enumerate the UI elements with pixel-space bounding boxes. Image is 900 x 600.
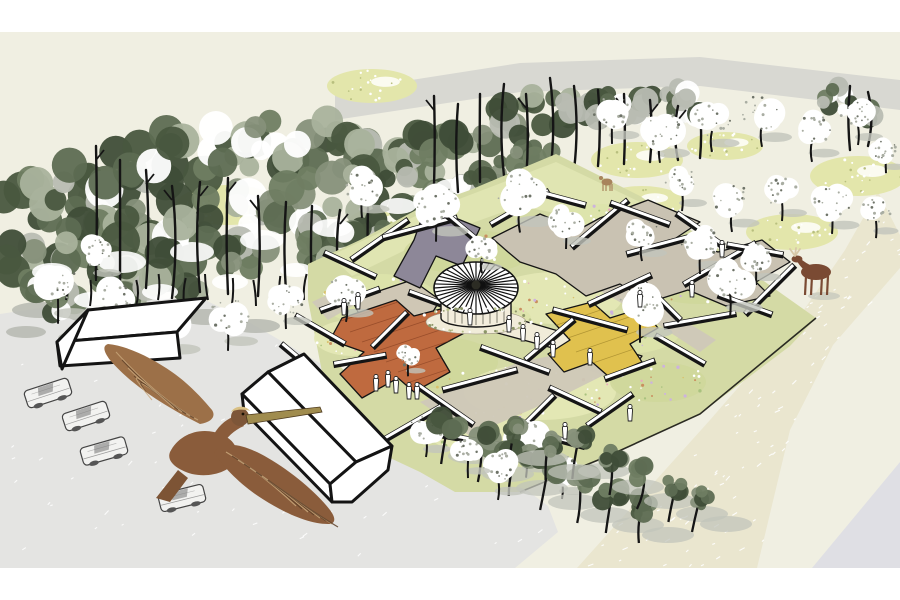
flower-dot [316,341,319,344]
mound-dot [351,88,353,90]
mound-dot [756,147,758,149]
pavilion-bed-dot [428,324,431,327]
canopy-speckle [483,237,486,240]
canopy-speckle [579,221,581,223]
canopy-speckle [405,361,407,363]
canopy-speckle [247,315,249,317]
canopy-speckle [56,289,58,291]
mound-dot [360,89,362,91]
canopy-speckle [228,325,231,328]
canopy-speckle [850,122,853,125]
canopy-speckle [404,355,406,357]
flower-dot [523,310,525,312]
mound-dot [824,228,826,230]
canopy-speckle [661,135,663,137]
canopy-speckle [605,121,607,123]
person-head [690,280,694,284]
canopy-speckle [693,183,695,185]
flower-dot [573,297,574,298]
canopy-speckle [861,111,863,113]
canopy-speckle [646,232,649,235]
mound-dot [360,87,361,88]
canopy-blob [613,492,626,505]
canopy-speckle [652,304,654,306]
person-body [562,426,567,439]
canopy-speckle [553,219,555,221]
canopy-speckle [713,195,715,197]
canopy-speckle [694,113,697,116]
canopy-blob [611,450,628,467]
canopy-speckle [712,109,713,110]
canopy-speckle [408,358,411,361]
person-figure [506,315,511,332]
mound-dot [367,81,370,84]
mound-dot [740,149,743,152]
flower-dot [546,304,548,306]
canopy-speckle [552,225,554,227]
pavilion-bed-dot [524,320,526,322]
tree-shadow [283,317,311,325]
person-figure [393,376,398,393]
flower-dot [698,389,701,392]
site-rendering-canvas [0,0,900,600]
canopy-speckle [631,231,634,234]
canopy-speckle [398,352,400,354]
canopy-speckle [707,134,709,136]
canopy-speckle [752,96,755,99]
person-head [374,374,378,378]
mound-dot [849,169,852,172]
mound-dot [863,175,866,178]
canopy-speckle [91,245,93,247]
canopy-speckle [613,125,616,128]
canopy-speckle [347,289,349,291]
canopy-speckle [794,185,797,188]
canopy-speckle [504,478,506,480]
canopy-speckle [781,182,784,185]
canopy-speckle [894,150,897,153]
mound-shape [327,69,417,103]
canopy-speckle [710,236,712,238]
mound-dot [851,162,853,164]
canopy-speckle [638,287,640,289]
canopy-speckle [873,217,875,219]
flower-dot [598,397,600,399]
canopy-speckle [674,169,676,171]
canopy-speckle [349,299,351,301]
canopy-speckle [701,123,703,125]
canopy-speckle [824,138,827,141]
tree-trunk [232,278,233,304]
canopy-blob [817,96,830,109]
canopy-speckle [888,210,890,212]
canopy-speckle [530,177,533,180]
person-head [468,308,472,312]
canopy-speckle [362,285,365,288]
person-figure [355,292,360,309]
canopy-speckle [564,222,566,224]
canopy-speckle [716,112,719,115]
canopy-speckle [298,302,300,304]
moose-shadow [808,292,840,300]
canopy-speckle [867,219,869,221]
mound-dot [628,174,630,176]
canopy-speckle [521,196,523,198]
canopy-speckle [873,201,875,203]
canopy-speckle [752,268,754,270]
canopy-speckle [498,475,500,477]
canopy-speckle [99,241,101,243]
mound-dot [794,224,796,226]
canopy-speckle [766,251,768,253]
canopy-speckle [813,137,815,139]
canopy-blob [665,484,678,497]
canopy-speckle [738,199,740,201]
canopy-speckle [423,437,425,439]
pavilion-bed-dot [484,330,487,333]
canopy-speckle [802,130,804,132]
canopy-speckle [842,196,843,197]
canopy-speckle [650,120,652,122]
canopy-speckle [505,454,508,457]
canopy-blob [55,231,78,254]
canopy-speckle [720,200,722,202]
pavilion-bed-dot [454,307,457,310]
canopy-speckle [642,226,645,229]
mound-dot [370,79,372,81]
mound-dot [811,234,813,236]
person-body [506,319,511,332]
canopy-speckle [125,302,128,305]
pelican-eye [242,413,245,416]
flower-dot [327,341,329,343]
canopy-speckle [534,425,537,428]
flower-dot [640,387,641,388]
canopy-speckle [768,185,770,187]
canopy-speckle [605,126,606,127]
canopy-speckle [822,202,824,204]
mound-dot [657,196,659,198]
canopy-speckle [300,303,303,306]
canopy-speckle [710,229,713,232]
mound-dot [722,134,724,136]
canopy-speckle [691,171,693,173]
mound-dot [801,224,803,226]
mound-dot [642,189,644,191]
canopy-speckle [719,127,722,130]
mound-dot [769,238,772,241]
canopy-speckle [573,221,576,224]
mound-dot [374,99,377,102]
canopy-speckle [884,153,886,155]
canopy-speckle [656,226,658,228]
canopy-speckle [536,184,538,186]
pavilion-bed-dot [518,327,520,329]
mound-dot [627,146,629,148]
canopy-speckle [288,291,290,293]
person-body [520,328,525,341]
canopy-speckle [603,118,606,121]
flower-dot [533,299,536,302]
canopy-speckle [742,114,744,116]
canopy-speckle [462,452,465,455]
canopy-speckle [63,293,65,295]
flower-dot [523,280,526,283]
mound-dot [378,97,381,100]
canopy-speckle [519,174,521,176]
canopy-speckle [481,240,483,242]
canopy-speckle [235,300,236,301]
canopy-blob [244,116,266,138]
canopy-speckle [877,156,880,159]
canopy-speckle [481,259,484,262]
mound-dot [857,174,859,176]
canopy-speckle [119,286,122,289]
canopy-speckle [745,101,748,104]
canopy-blob [284,131,311,158]
canopy-speckle [871,199,873,201]
canopy-speckle [776,109,777,110]
mound-dot [646,146,648,148]
flower-dot [528,282,529,283]
canopy-speckle [102,249,105,252]
flower-dot [694,379,696,381]
mound-dot [379,89,382,92]
mound-dot [350,98,352,100]
canopy-speckle [620,299,622,301]
canopy-blob [221,252,242,273]
canopy-speckle [403,363,406,366]
canopy-speckle [854,117,856,119]
flower-dot [661,386,663,388]
pavilion-bed-dot [496,308,498,310]
canopy-speckle [768,260,770,262]
canopy-speckle [652,296,654,298]
canopy-speckle [272,303,274,305]
person-body [341,302,346,315]
mound-dot [366,70,368,72]
canopy-speckle [677,179,679,181]
canopy-speckle [404,345,407,348]
canopy-speckle [346,184,349,187]
pavilion-bed-dot [457,308,460,311]
canopy-speckle [501,473,503,475]
person-figure [689,280,694,297]
canopy-speckle [447,202,450,205]
pavilion-bed-dot [451,329,453,331]
canopy-speckle [721,289,724,292]
canopy-speckle [510,180,512,182]
mound-dot [869,179,871,181]
canopy-speckle [351,291,354,294]
canopy-speckle [622,115,625,118]
mound-dot [399,78,402,81]
mound-dot [863,167,866,170]
canopy-speckle [554,225,556,227]
flower-dot [595,389,597,391]
canopy-speckle [878,147,881,150]
canopy-speckle [529,195,532,198]
mound-dot [725,150,728,153]
canopy-speckle [871,206,874,209]
canopy-speckle [761,261,764,264]
canopy-speckle [474,255,477,258]
canopy-speckle [840,114,843,117]
person-body [355,296,360,309]
canopy-speckle [770,182,772,184]
pavilion-bed-dot [512,327,515,330]
flower-dot [519,308,522,311]
canopy-speckle [705,248,707,250]
mound-dot [360,77,362,79]
mound-dot [797,226,800,229]
canopy-speckle [246,322,248,324]
canopy-speckle [839,213,842,216]
canopy-speckle [456,454,459,457]
canopy-speckle [459,451,461,453]
mound-dot [332,81,335,84]
pavilion-bed-dot [434,326,437,329]
canopy-speckle [681,183,684,186]
pavilion-bed-dot [469,331,471,333]
canopy-speckle [290,311,291,312]
canopy-speckle [350,173,352,175]
canopy-speckle [867,204,869,206]
pavilion-bed-dot [448,329,450,331]
person-figure [637,290,642,307]
canopy-speckle [417,360,419,362]
canopy-speckle [649,304,650,305]
canopy-speckle [710,242,712,244]
canopy-blob [578,430,592,444]
canopy-speckle [426,220,429,223]
tree-shadow [753,273,781,281]
canopy-blob [850,108,869,127]
canopy-speckle [417,206,419,208]
canopy-speckle [125,287,128,290]
canopy-speckle [884,150,886,152]
canopy-speckle [829,188,831,190]
mound-dot [625,169,627,171]
canopy-speckle [753,260,756,263]
mound-dot [617,168,619,170]
canopy-speckle [402,359,404,361]
canopy-speckle [861,106,863,108]
canopy-speckle [734,292,736,294]
canopy-blob [515,177,546,208]
canopy-speckle [665,182,667,184]
canopy-speckle [475,451,477,453]
flower-dot [651,395,653,397]
pavilion-bed-dot [462,331,464,333]
canopy-speckle [356,174,359,177]
canopy-blob [442,419,463,440]
canopy-speckle [712,248,714,250]
flower-dot [587,388,589,390]
canopy-speckle [220,302,222,304]
canopy-speckle [498,454,501,457]
canopy-speckle [646,304,648,306]
canopy-speckle [371,191,373,193]
person-figure [627,404,632,421]
canopy-speckle [509,468,512,471]
canopy-speckle [490,470,493,473]
canopy-speckle [686,246,689,249]
mound-dot [776,239,778,241]
mound-dot [630,168,631,169]
flower-dot [629,386,631,388]
flower-dot [329,342,332,345]
canopy-speckle [414,356,416,358]
canopy-speckle [803,117,806,120]
canopy-speckle [469,251,471,253]
canopy-blob [696,485,708,497]
pavilion-bed-dot [460,307,463,310]
flower-dot [650,368,653,371]
tree-trunk [876,221,877,238]
flower-dot [697,375,700,378]
canopy-speckle [102,298,104,300]
canopy-speckle [709,247,712,250]
canopy-speckle [729,281,731,283]
tree-shadow [709,139,740,148]
canopy-speckle [602,98,604,100]
canopy-speckle [360,198,362,200]
canopy-speckle [652,142,655,145]
mound-dot [599,164,602,167]
pavilion-bed-dot [464,307,467,310]
canopy-speckle [292,306,294,308]
canopy-speckle [50,300,52,302]
pavilion-bed-dot [515,310,517,312]
canopy-speckle [421,416,423,418]
canopy-speckle [475,443,477,445]
canopy-speckle [471,241,474,244]
canopy-speckle [341,292,343,294]
canopy-speckle [813,118,816,121]
flower-dot [644,397,646,399]
moose-leg [827,276,828,295]
flower-dot [680,295,682,297]
canopy-speckle [894,144,896,146]
canopy-speckle [679,185,681,187]
flower-dot [584,393,586,395]
person-body [627,408,632,421]
flower-dot [532,307,534,309]
flower-dot [669,398,672,401]
canopy-blob [223,302,249,328]
moose-leg [805,276,806,295]
canopy-speckle [836,202,838,204]
canopy-speckle [765,127,767,129]
canopy-speckle [621,120,624,123]
canopy-speckle [375,194,378,197]
canopy-speckle [673,173,675,175]
flower-dot [611,312,614,315]
pavilion-bed-dot [502,309,504,311]
canopy-speckle [597,120,599,122]
canopy-speckle [735,288,737,290]
canopy-speckle [67,286,69,288]
canopy-speckle [696,109,698,111]
canopy-speckle [411,422,413,424]
canopy-speckle [89,263,91,265]
canopy-speckle [708,278,710,280]
canopy-speckle [770,189,772,191]
flower-dot [545,277,548,280]
pavilion-bed-dot [441,311,443,313]
canopy-speckle [240,320,243,323]
